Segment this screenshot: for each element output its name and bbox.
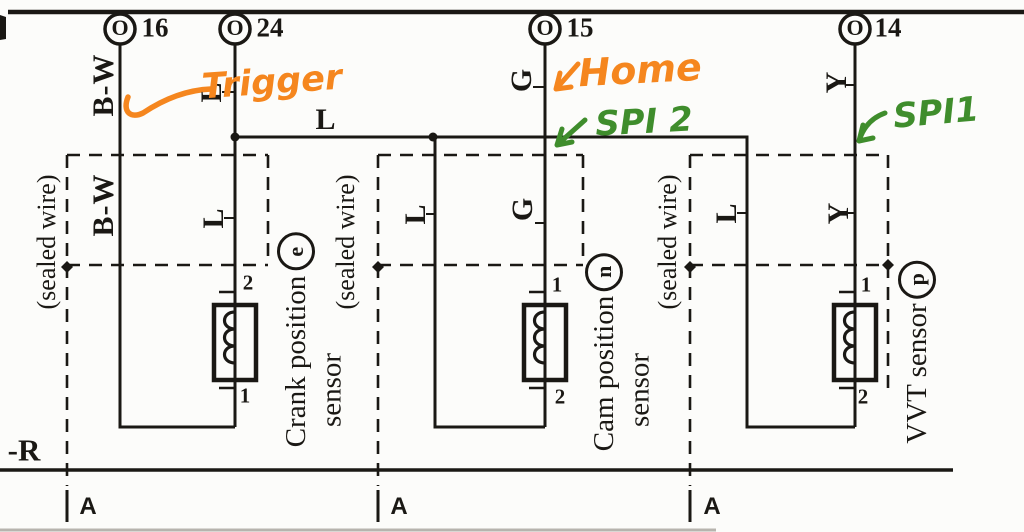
vvt-sensor-label: VVT sensor p — [898, 260, 936, 443]
connector-14-label: 14 — [875, 15, 902, 42]
cam-sensor-name2: sensor — [626, 353, 655, 427]
connector-14-symbol: O — [846, 17, 863, 39]
sealed-wire-label-left: (sealed wire) — [34, 175, 60, 310]
annotation-spi2: SPI 2 — [594, 102, 693, 141]
wire-label-r: -R — [8, 435, 41, 466]
vvt-pin-bottom-label: 2 — [858, 387, 869, 408]
wire-label-g-mid: G — [508, 197, 538, 221]
connector-16-symbol: O — [111, 17, 128, 39]
annotation-trigger: Trigger — [201, 61, 344, 106]
wiring-diagram-page: O O O O 16 24 15 14 B-W B-W L L L L L G … — [0, 0, 1024, 532]
crank-sensor-label-line1: Crank position e — [277, 233, 315, 448]
ground-label-a3: A — [703, 495, 720, 519]
junction-dot-2 — [429, 133, 438, 142]
cam-sensor-label-line2: sensor — [626, 353, 655, 427]
wire-l-cam-loop — [435, 137, 545, 427]
ground-label-a2: A — [390, 495, 407, 519]
cam-pin-bottom-label: 2 — [555, 387, 566, 408]
connector-24-label: 24 — [257, 15, 284, 42]
wire-label-l-branch: L — [315, 105, 336, 135]
vvt-sensor-name: VVT sensor — [903, 303, 932, 443]
sealed-wire-shield-boxes — [67, 155, 888, 486]
ground-stub-lines — [67, 490, 690, 522]
wire-label-l-mid: L — [199, 207, 229, 228]
wire-label-y-top: Y — [822, 71, 852, 94]
annotation-home: Home — [577, 48, 702, 92]
crank-coil-icon — [225, 312, 236, 363]
vvt-sensor-code-badge: p — [898, 260, 936, 298]
wire-label-bw-top: B-W — [89, 54, 119, 117]
vvt-coil-icon — [845, 312, 856, 363]
connector-24-symbol: O — [226, 17, 243, 39]
crank-sensor-code-badge: e — [277, 233, 315, 271]
annotation-spi1: SPI1 — [892, 92, 980, 133]
cam-sensor-name: Cam position — [590, 296, 619, 451]
crank-pin-top-label: 2 — [243, 273, 254, 294]
wire-label-y-mid: Y — [824, 202, 854, 225]
connector-15-symbol: O — [536, 17, 553, 39]
sealed-wire-label-middle: (sealed wire) — [333, 175, 359, 310]
connector-16-label: 16 — [142, 15, 169, 42]
page-left-edge-mark — [0, 15, 6, 40]
crank-sensor-label-line2: sensor — [318, 353, 347, 427]
wire-label-g-top: G — [507, 68, 537, 92]
sealed-wire-label-right: (sealed wire) — [655, 175, 681, 310]
vvt-pin-top-label: 1 — [861, 275, 872, 296]
connector-15-label: 15 — [567, 15, 594, 42]
spi1-arrow — [859, 113, 885, 141]
home-arrow — [556, 64, 578, 89]
cam-coil-icon — [535, 312, 546, 363]
crank-sensor-name: Crank position — [282, 276, 311, 448]
connector-circles — [105, 14, 870, 44]
wire-label-l-cam: L — [401, 203, 431, 224]
cam-sensor-label-line1: Cam position n — [585, 253, 623, 451]
cam-sensor-code-badge: n — [585, 253, 623, 291]
cam-pin-top-label: 1 — [552, 275, 563, 296]
junction-dot-1 — [231, 133, 240, 142]
ground-label-a1: A — [79, 495, 96, 519]
crank-sensor-name2: sensor — [318, 353, 347, 427]
wire-label-bw-mid: B-W — [89, 174, 119, 237]
crank-pin-bottom-label: 1 — [240, 386, 251, 407]
wire-label-l-vvt: L — [712, 202, 742, 223]
spi2-arrow — [557, 120, 585, 145]
